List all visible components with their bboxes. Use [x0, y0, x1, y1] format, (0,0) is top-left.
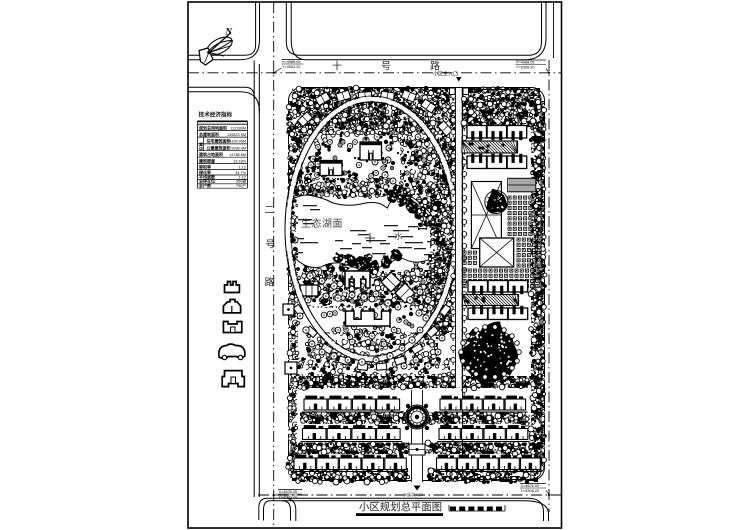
svg-text:小区次入口: 小区次入口: [403, 491, 423, 497]
svg-text:13.18%: 13.18%: [233, 159, 247, 163]
svg-text:十: 十: [332, 60, 342, 73]
svg-text:X=4988.05: X=4988.05: [282, 60, 300, 64]
svg-text:Y=5308.20: Y=5308.20: [521, 489, 539, 493]
svg-text:34.7%: 34.7%: [235, 171, 246, 175]
svg-text:规划总用地面积: 规划总用地面积: [198, 124, 227, 130]
svg-text:建筑占地面积: 建筑占地面积: [199, 151, 223, 157]
svg-text:号: 号: [266, 240, 276, 251]
svg-text:二: 二: [265, 206, 275, 216]
svg-text:技术经济指标: 技术经济指标: [199, 111, 233, 119]
svg-text:水: 水: [394, 231, 403, 241]
svg-text:总户数: 总户数: [199, 182, 211, 188]
svg-text:中: 中: [199, 146, 203, 152]
svg-text:X=4625.05: X=4625.05: [279, 490, 297, 494]
svg-text:790户: 790户: [236, 183, 246, 188]
svg-text:号: 号: [381, 61, 391, 73]
svg-text:N: N: [225, 27, 233, 37]
svg-text:建筑密度: 建筑密度: [199, 157, 216, 163]
svg-text:住宅建筑面积: 住宅建筑面积: [207, 138, 231, 144]
svg-text:X=4625.05: X=4625.05: [521, 484, 539, 488]
svg-text:X=4988.05: X=4988.05: [516, 61, 534, 65]
svg-text:Y=5308.20: Y=5308.20: [516, 65, 534, 69]
svg-text:总建筑面积: 总建筑面积: [199, 131, 219, 137]
svg-text:350辆: 350辆: [236, 179, 246, 184]
svg-text:公建建筑面积: 公建建筑面积: [207, 145, 231, 151]
svg-text:容积率: 容积率: [198, 163, 211, 169]
svg-text:1.12: 1.12: [239, 165, 246, 169]
svg-text:9938.4M: 9938.4M: [231, 147, 246, 151]
svg-text:小区规划总平面图: 小区规划总平面图: [359, 501, 442, 514]
svg-text:路: 路: [430, 60, 440, 73]
svg-text:Y=4963.20: Y=4963.20: [279, 495, 297, 499]
svg-text:Y=4963.20: Y=4963.20: [282, 65, 300, 69]
svg-text:4195.95M: 4195.95M: [229, 140, 246, 144]
svg-text:14788.6M: 14788.6M: [229, 153, 246, 157]
svg-text:路: 路: [265, 277, 275, 289]
svg-text:小区主入口: 小区主入口: [433, 71, 458, 78]
svg-text:135823.9M: 135823.9M: [227, 133, 246, 137]
svg-text:112280M: 112280M: [230, 126, 246, 130]
